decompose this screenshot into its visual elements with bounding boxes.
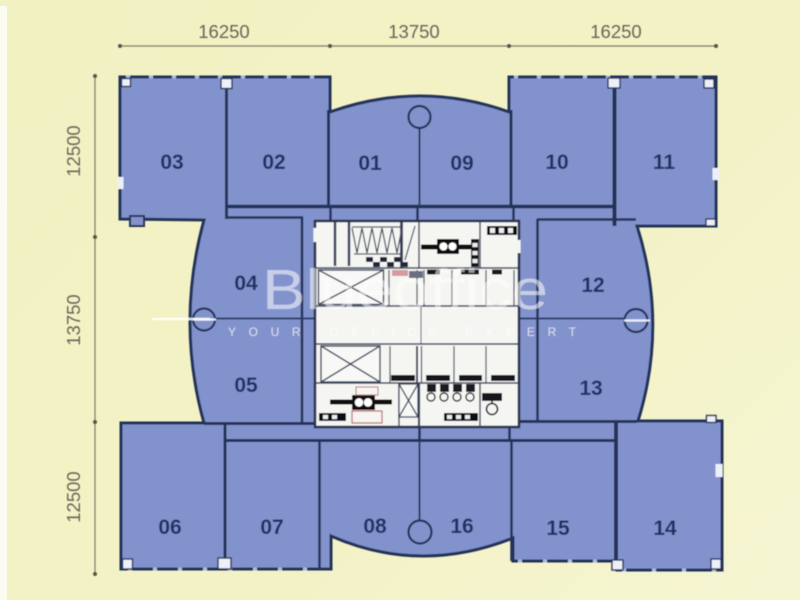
svg-text:04: 04: [234, 272, 258, 295]
svg-text:06: 06: [158, 516, 181, 539]
svg-text:10: 10: [545, 151, 568, 174]
svg-text:13750: 13750: [388, 21, 439, 42]
svg-text:16250: 16250: [198, 21, 249, 42]
svg-text:12500: 12500: [63, 471, 84, 522]
svg-text:11: 11: [653, 151, 676, 174]
svg-text:08: 08: [363, 515, 387, 538]
svg-text:12500: 12500: [63, 125, 84, 176]
svg-text:09: 09: [450, 152, 473, 175]
svg-text:02: 02: [262, 151, 285, 174]
svg-text:16250: 16250: [590, 21, 641, 42]
svg-text:13750: 13750: [63, 294, 84, 345]
svg-text:13: 13: [579, 377, 602, 400]
svg-text:01: 01: [358, 152, 382, 175]
svg-text:15: 15: [546, 517, 570, 540]
svg-text:Blueoffice: Blueoffice: [262, 258, 548, 322]
svg-text:07: 07: [260, 516, 283, 539]
svg-text:05: 05: [234, 374, 258, 397]
svg-text:12: 12: [581, 274, 604, 297]
svg-text:14: 14: [653, 517, 677, 540]
svg-text:16: 16: [450, 515, 473, 538]
svg-text:03: 03: [160, 151, 183, 174]
